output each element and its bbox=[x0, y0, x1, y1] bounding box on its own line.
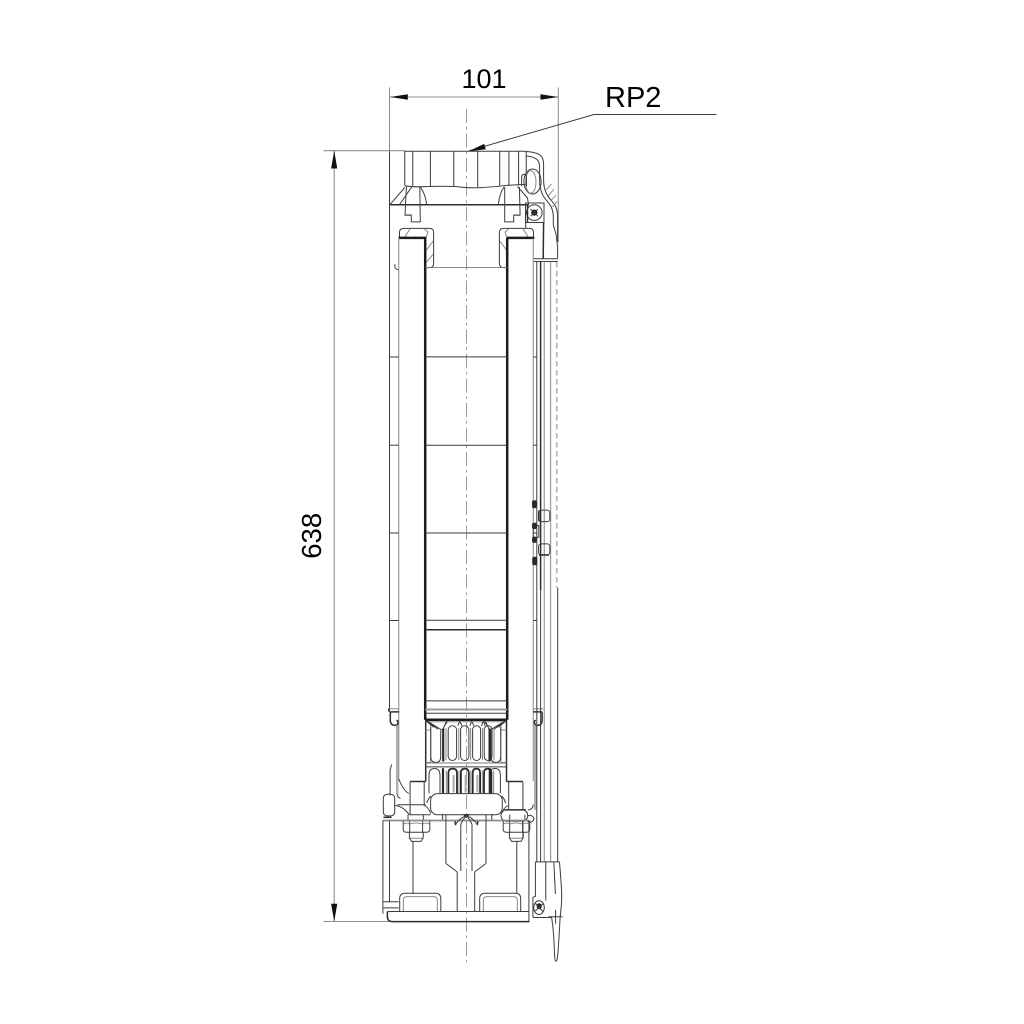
svg-text:101: 101 bbox=[461, 64, 506, 94]
svg-text:RP2: RP2 bbox=[605, 82, 661, 114]
svg-text:638: 638 bbox=[296, 513, 327, 559]
